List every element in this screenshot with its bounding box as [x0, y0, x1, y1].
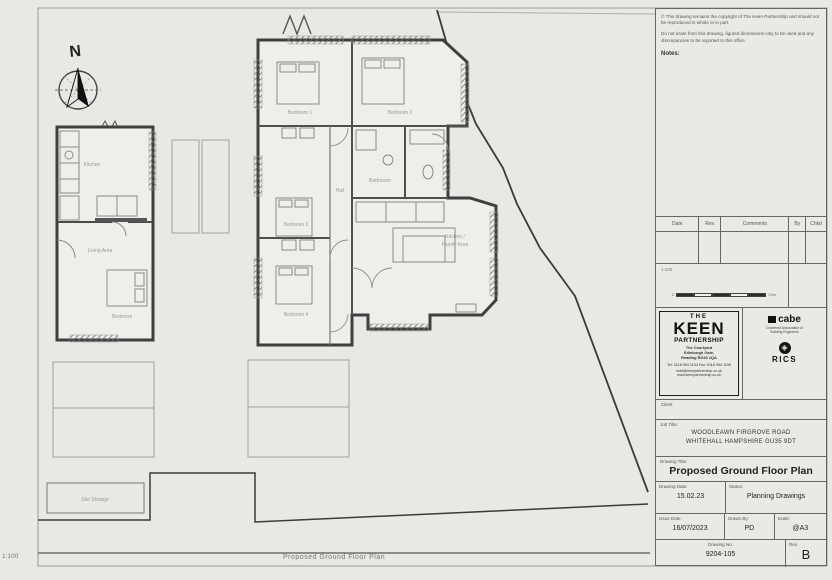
room-label: Living Area: [88, 248, 113, 254]
storage-building: Site Storage: [47, 483, 144, 513]
scale-bar-side-cell: [788, 264, 826, 307]
drawing-title-label: Drawing Title:: [660, 459, 822, 464]
cabe-logo-text: cabe: [778, 314, 801, 325]
drawing-date: 15.02.23: [659, 493, 722, 500]
rics-logo-icon: ◈: [779, 342, 791, 354]
room-label: Bedroom 4: [284, 312, 309, 318]
drawing-date-label: Drawing Date:: [659, 484, 722, 489]
graphic-scale-bar: 0 10m: [670, 292, 778, 297]
dimensions-note-text: Do not scale from this drawing, figured …: [661, 31, 821, 43]
scale-label: Scale:: [778, 516, 823, 521]
scale-start-num: 0: [672, 292, 674, 297]
rics-logo-text: RICS: [743, 355, 826, 364]
keen-logo: THE KEEN PARTNERSHIP The Courtyard Edinb…: [659, 311, 739, 396]
firm-partnership: PARTNERSHIP: [660, 337, 738, 344]
room-label: Bedroom 3: [284, 222, 309, 228]
room-label: Kitchen /: [445, 234, 465, 240]
room-label: Family Area: [442, 242, 469, 248]
title-block: © This drawing remains the copyright of …: [655, 8, 827, 566]
drawn-by-label: Drawn By:: [728, 516, 770, 521]
job-title-line-2: WHITEHALL HAMPSHIRE GU35 9DT: [660, 438, 822, 447]
north-label: N: [69, 43, 82, 61]
revision-header-row: Date Rev Comments By Chkd: [656, 217, 826, 232]
room-label: Hall: [336, 188, 345, 194]
footer-scale-note: 1:100: [2, 553, 18, 560]
drawing-title: Proposed Ground Floor Plan: [660, 465, 822, 477]
room-label: Bedroom 1: [288, 110, 313, 116]
logo-panel: THE KEEN PARTNERSHIP The Courtyard Edinb…: [656, 307, 826, 399]
job-title-line-1: WOODLEAWN FIRGROVE ROAD: [660, 429, 822, 438]
issue-date-label: Issue Date:: [659, 516, 721, 521]
drawing-no: 9204-105: [659, 551, 782, 558]
accreditation-cell: cabe Chartered Association of Building E…: [743, 308, 826, 399]
firm-telephone: Tel: 0118 954 1194 Fax: 0118 954 1196: [660, 363, 738, 367]
firm-name: KEEN: [660, 320, 738, 337]
job-title-cell: Job Title: WOODLEAWN FIRGROVE ROAD WHITE…: [656, 419, 826, 456]
cabe-logo-icon: [768, 316, 776, 323]
room-label: Kitchen: [84, 162, 101, 168]
firm-address-3: Reading RG30 2QA: [660, 356, 738, 361]
main-house: [254, 36, 498, 345]
firm-email-web: mail@keenpartnership.co.uk www.keenpartn…: [660, 369, 738, 377]
annex-building: [57, 127, 156, 342]
revision-empty-row: [656, 232, 826, 264]
scale-value: @A3: [778, 525, 823, 532]
room-label: Bedroom 2: [388, 110, 413, 116]
status-value: Planning Drawings: [729, 493, 823, 500]
rev-col-rev: Rev: [699, 217, 721, 231]
drawing-title-cell: Drawing Title: Proposed Ground Floor Pla…: [656, 456, 826, 481]
status-label: Status:: [729, 484, 823, 489]
footer-drawing-title: Proposed Ground Floor Plan: [283, 554, 385, 561]
date-status-row: Drawing Date: 15.02.23 Status: Planning …: [656, 481, 826, 513]
north-arrow: N: [55, 43, 101, 109]
scale-bar-panel: 1:100 0 10m: [656, 263, 826, 307]
revision-table: Date Rev Comments By Chkd: [656, 216, 826, 263]
storage-label: Site Storage: [81, 497, 109, 503]
rev-col-by: By: [789, 217, 806, 231]
room-label: Bedroom: [112, 314, 132, 320]
client-cell: Client: [656, 399, 826, 419]
notes-label: Notes:: [661, 50, 821, 58]
client-label: Client: [661, 402, 673, 407]
scale-bar-label: 1:100: [661, 267, 672, 272]
issue-drawn-scale-row: Issue Date: 16/07/2023 Drawn By: PD Scal…: [656, 513, 826, 539]
copyright-notes-panel: © This drawing remains the copyright of …: [656, 9, 826, 216]
scale-end-num: 10m: [768, 292, 776, 297]
rev-col-date: Date: [656, 217, 699, 231]
room-label: Bathroom: [369, 178, 391, 184]
copyright-text: © This drawing remains the copyright of …: [661, 14, 821, 26]
rev-value: B: [789, 547, 823, 562]
issue-date: 16/07/2023: [659, 525, 721, 532]
job-title-label: Job Title:: [660, 422, 822, 427]
rev-col-comments: Comments: [721, 217, 789, 231]
rev-col-chkd: Chkd: [806, 217, 826, 231]
drawing-no-label: Drawing No:: [659, 542, 782, 547]
firm-logo-cell: THE KEEN PARTNERSHIP The Courtyard Edinb…: [656, 308, 743, 399]
drawing-no-rev-row: Drawing No: 9204-105 Rev: B: [656, 539, 826, 567]
drawn-by: PD: [728, 525, 770, 532]
